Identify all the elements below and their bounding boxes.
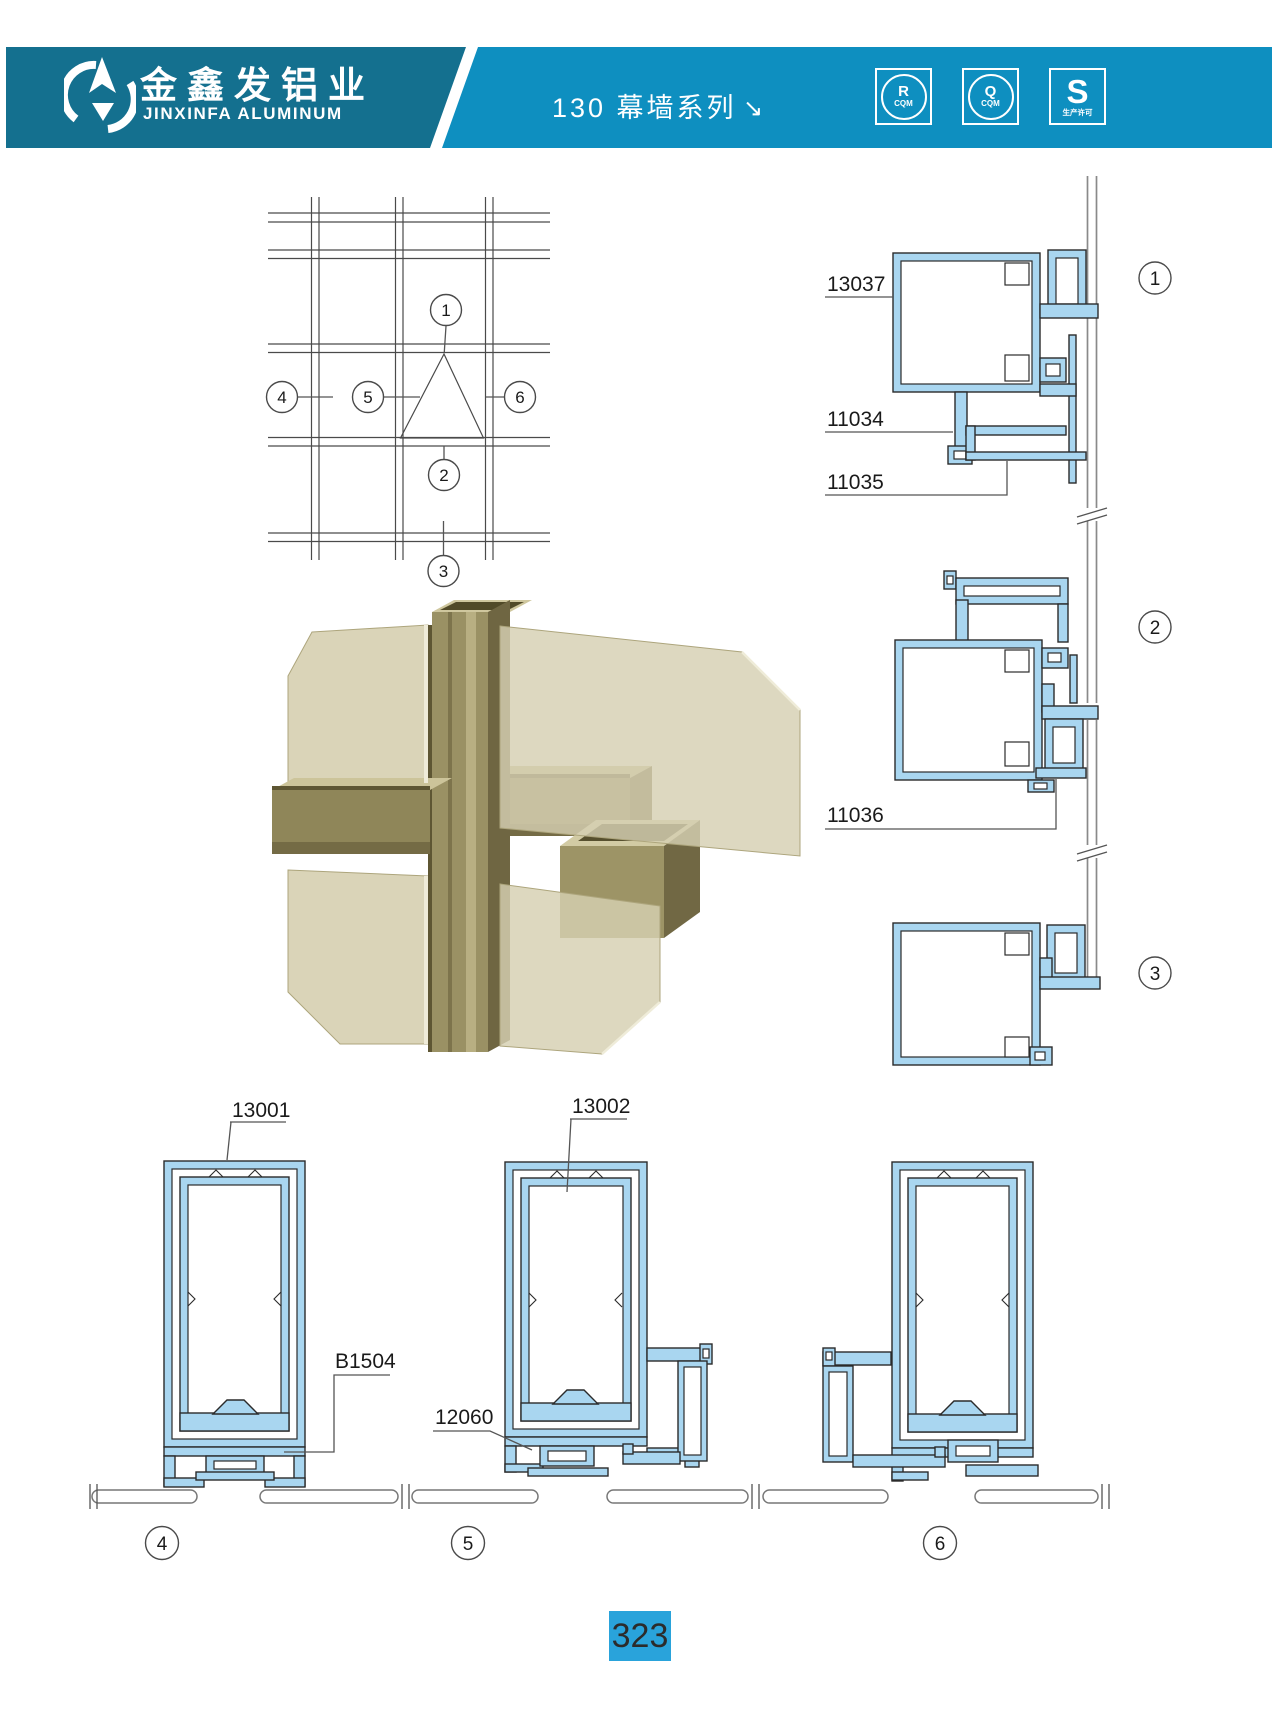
label-13037: 13037 xyxy=(827,273,885,296)
grid-key-plan: 1 2 3 4 5 6 xyxy=(267,197,551,587)
plan-marker-3-num: 3 xyxy=(439,562,448,581)
horizontal-glass-strips xyxy=(90,1484,1109,1509)
page-number: 323 xyxy=(609,1611,671,1661)
render-3d-curtain-wall xyxy=(272,600,800,1054)
section-marker-2-num: 2 xyxy=(1150,618,1161,639)
glass-break-marks xyxy=(1077,508,1107,861)
label-11035: 11035 xyxy=(827,471,884,494)
section-marker-6-num: 6 xyxy=(935,1534,946,1555)
right-section-markers: 1 2 3 xyxy=(1139,262,1171,989)
plan-marker-4-num: 4 xyxy=(277,388,286,407)
section-detail-4 xyxy=(164,1161,305,1487)
section-detail-6 xyxy=(823,1162,1038,1481)
section-detail-3 xyxy=(893,923,1100,1065)
section-marker-5-num: 5 xyxy=(463,1534,474,1555)
plan-marker-5-num: 5 xyxy=(363,388,372,407)
section-marker-4-num: 4 xyxy=(157,1534,168,1555)
bottom-section-markers: 4 5 6 xyxy=(146,1527,957,1560)
catalog-page: 金鑫发铝业 JINXINFA ALUMINUM 130 幕墙系列 ↘ R CQM… xyxy=(0,0,1279,1721)
label-B1504: B1504 xyxy=(335,1350,396,1373)
strip-break-marks xyxy=(90,1484,1109,1509)
label-11034: 11034 xyxy=(827,408,884,431)
label-11036: 11036 xyxy=(827,804,884,827)
section-marker-1-num: 1 xyxy=(1150,269,1161,290)
plan-triangle xyxy=(401,354,484,438)
label-13001: 13001 xyxy=(232,1099,290,1122)
plan-marker-2-num: 2 xyxy=(439,466,448,485)
plan-marker-1-num: 1 xyxy=(441,301,450,320)
label-12060: 12060 xyxy=(435,1406,493,1429)
plan-marker-6-num: 6 xyxy=(515,388,524,407)
technical-drawing: 1 2 3 4 5 6 xyxy=(0,0,1279,1721)
section-detail-1 xyxy=(893,250,1098,483)
label-13002: 13002 xyxy=(572,1095,630,1118)
section-detail-5 xyxy=(505,1162,712,1476)
section-detail-2 xyxy=(895,571,1098,792)
section-marker-3-num: 3 xyxy=(1150,964,1161,985)
